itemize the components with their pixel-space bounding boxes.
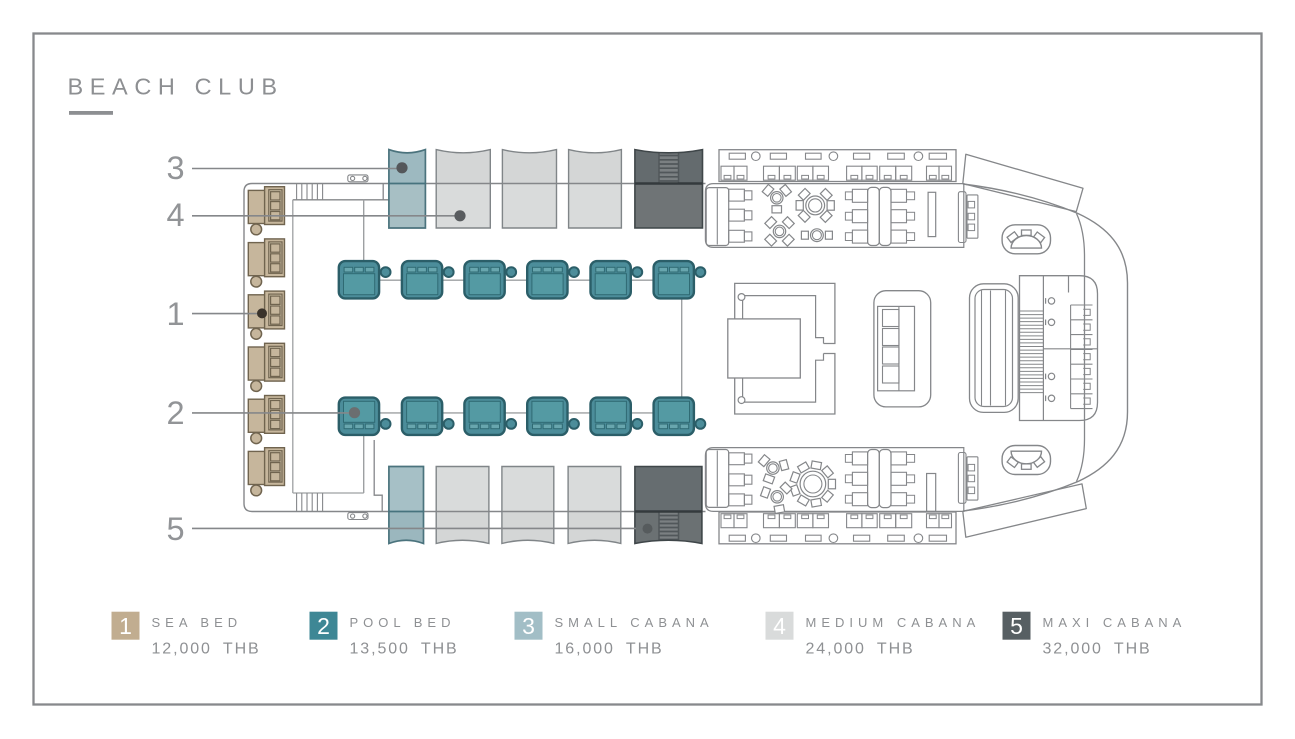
svg-text:16,000 THB: 16,000 THB [555, 641, 664, 658]
svg-text:POOL BED: POOL BED [350, 615, 456, 630]
svg-text:2: 2 [166, 395, 184, 431]
svg-text:MEDIUM CABANA: MEDIUM CABANA [806, 615, 981, 630]
svg-text:13,500 THB: 13,500 THB [350, 641, 459, 658]
svg-text:5: 5 [166, 511, 184, 547]
svg-text:4: 4 [166, 197, 184, 233]
svg-text:2: 2 [317, 613, 330, 639]
svg-text:5: 5 [1010, 613, 1023, 639]
svg-text:12,000 THB: 12,000 THB [152, 641, 261, 658]
svg-text:SEA BED: SEA BED [152, 615, 243, 630]
svg-text:BEACH CLUB: BEACH CLUB [68, 74, 284, 100]
svg-text:1: 1 [166, 296, 184, 332]
svg-text:MAXI CABANA: MAXI CABANA [1043, 615, 1187, 630]
svg-text:SMALL CABANA: SMALL CABANA [555, 615, 714, 630]
svg-text:3: 3 [166, 150, 184, 186]
svg-text:1: 1 [119, 613, 132, 639]
svg-text:32,000 THB: 32,000 THB [1043, 641, 1152, 658]
svg-text:3: 3 [522, 613, 535, 639]
svg-text:24,000 THB: 24,000 THB [806, 641, 915, 658]
svg-text:4: 4 [773, 613, 786, 639]
